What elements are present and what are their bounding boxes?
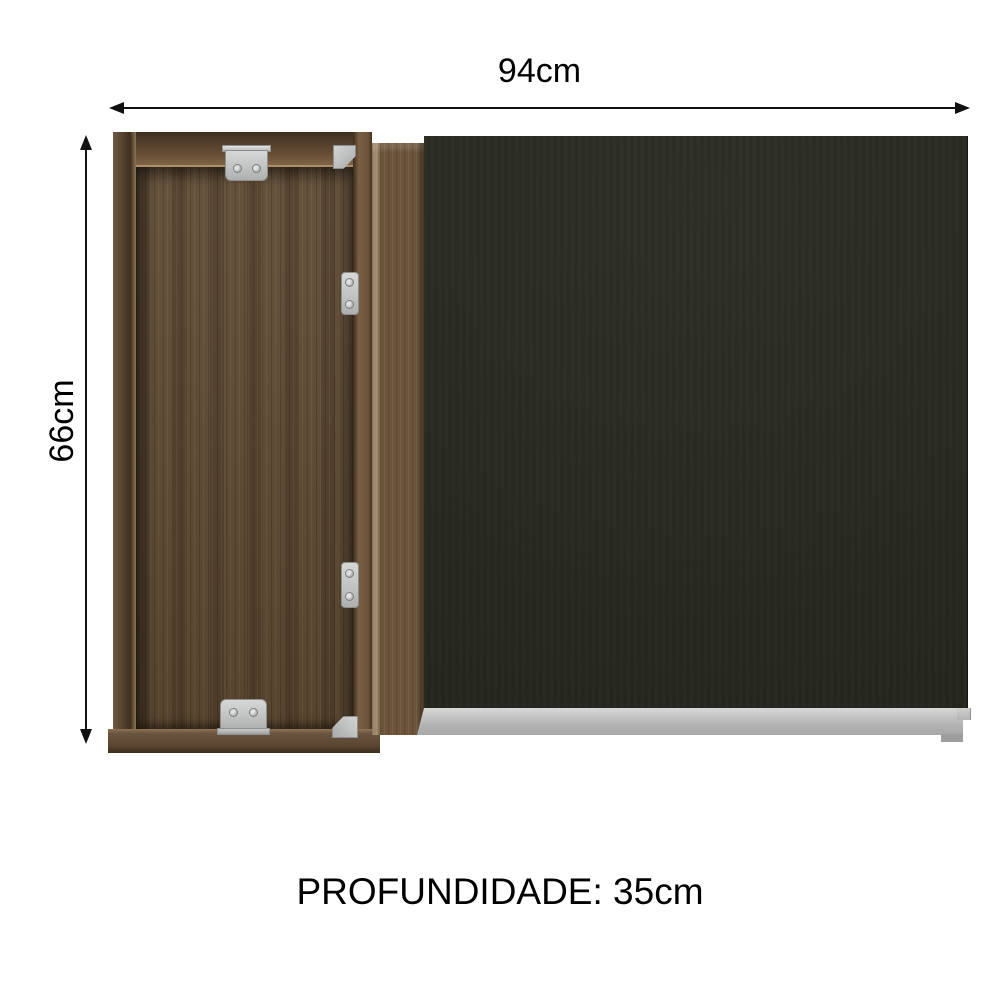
screw-icon [345, 592, 354, 601]
door-panel [424, 136, 968, 708]
top-hinge-plate-icon [225, 150, 268, 181]
screw-icon [229, 708, 238, 717]
width-dimension-line [112, 107, 967, 109]
bottom-hinge-flap-icon [217, 728, 270, 735]
handle-rail [417, 708, 963, 735]
arrowhead-up-icon [80, 135, 92, 150]
handle-rail-end-cap [957, 708, 971, 720]
screw-icon [345, 569, 354, 578]
bottom-hinge-plate-icon [220, 699, 267, 730]
side-hinge-lower-icon [341, 562, 359, 608]
side-hinge-upper-icon [341, 272, 359, 315]
depth-caption: PROFUNDIDADE: 35cm [0, 872, 1000, 912]
compartment-back-panel [136, 167, 353, 729]
height-dimension-line [85, 138, 87, 740]
arrowhead-down-icon [80, 729, 92, 744]
height-dimension-label: 66cm [43, 321, 81, 521]
product-dimension-diagram: 94cm 66cm [0, 0, 1000, 1000]
screw-icon [252, 164, 261, 173]
width-dimension-label: 94cm [112, 52, 967, 90]
compartment-left-wall [113, 132, 136, 753]
arrowhead-left-icon [109, 102, 124, 114]
screw-icon [233, 164, 242, 173]
divider-panel [372, 143, 424, 735]
screw-icon [345, 300, 354, 309]
screw-icon [249, 708, 258, 717]
handle-rail-foot [941, 734, 963, 742]
arrowhead-right-icon [955, 102, 970, 114]
screw-icon [345, 278, 354, 287]
compartment-right-wall [353, 132, 372, 753]
